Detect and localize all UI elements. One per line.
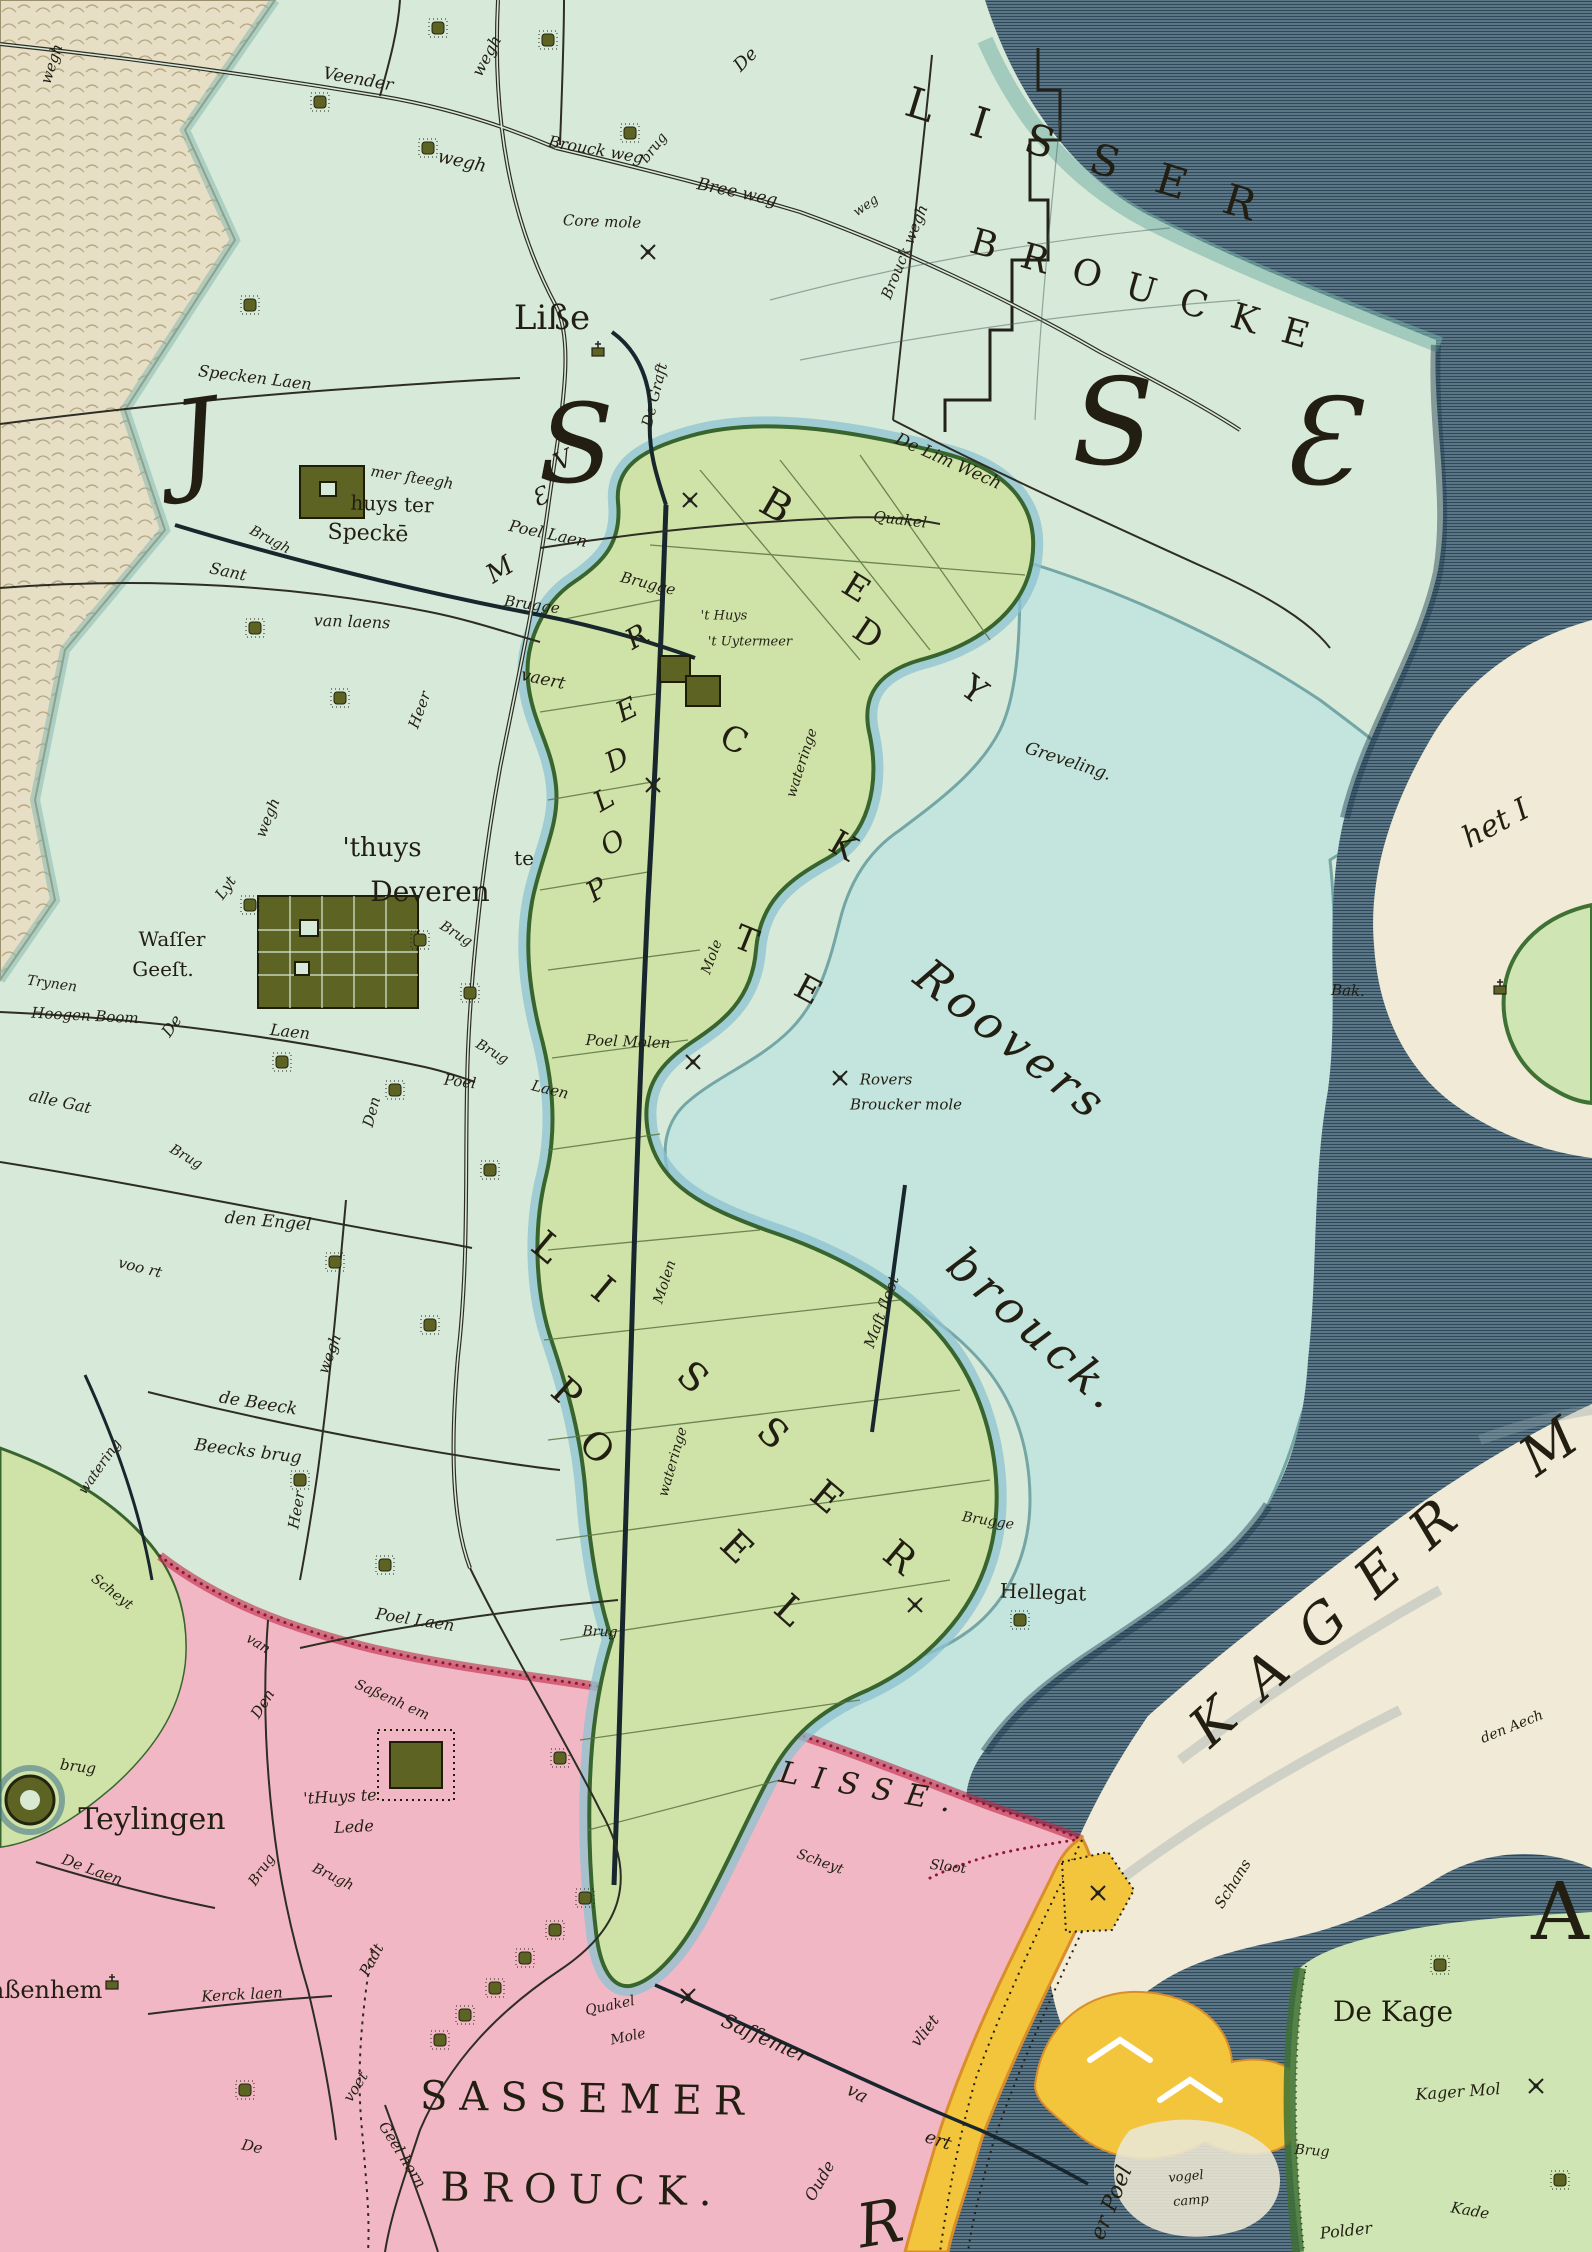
label-p3: E <box>714 1524 760 1571</box>
label-broucke_big: BROUCKE <box>966 224 1337 362</box>
label-l2: I <box>585 1270 621 1309</box>
label-p1: P <box>545 1370 589 1415</box>
label-de_v: De <box>159 1012 185 1039</box>
label-vliet_v: vliet <box>908 2012 942 2050</box>
label-voort: voo rt <box>117 1255 164 1280</box>
label-van2: van <box>244 1631 273 1656</box>
label-ert: ert <box>923 2128 954 2153</box>
label-q1: P <box>582 873 613 907</box>
label-de_graft: De Graft <box>640 361 670 428</box>
label-polder_k: Polder <box>1319 2220 1373 2241</box>
label-greveling: Greveling. <box>1023 740 1113 784</box>
label-lyt: Lyt <box>213 874 239 902</box>
label-hellegat: Hellegat <box>999 1580 1086 1603</box>
label-b8: E <box>789 969 827 1011</box>
label-te_dev: te <box>514 848 534 868</box>
label-g3: S <box>1072 364 1154 484</box>
label-brug_sw: Brug <box>167 1142 204 1172</box>
label-big_a: A <box>1531 1872 1589 1952</box>
label-brugge3: Brugge <box>961 1510 1015 1532</box>
label-poel_s: Poel <box>443 1073 477 1092</box>
label-brouck_s_big: BROUCK. <box>440 2168 724 2213</box>
label-geest: Geeſt. <box>132 959 193 979</box>
label-p2: O <box>573 1423 622 1472</box>
label-vogel1: vogel <box>1168 2169 1204 2185</box>
label-va: va <box>844 2081 871 2107</box>
label-sloot1: Sloot <box>929 1858 967 1876</box>
label-kager_mol: Kager Mol <box>1415 2081 1501 2103</box>
label-l6: R <box>877 1533 923 1581</box>
label-core_mole: Core mole <box>563 213 642 231</box>
label-g1: J <box>167 382 226 497</box>
label-brouck_wegh_v: Brouck wegh <box>879 203 930 301</box>
label-q2: O <box>596 825 630 861</box>
label-b4: Y <box>955 670 993 711</box>
label-mer_steegh: mer ſteegh <box>370 464 455 492</box>
map-canvas: weghVeenderweghweghBrouck wegbrugBree we… <box>0 0 1592 2252</box>
label-brug_top: brug <box>638 130 670 165</box>
label-specke: Speckē <box>327 522 409 547</box>
label-wegh_n: wegh <box>470 33 505 79</box>
label-er_poel: er Poel <box>1087 2163 1137 2243</box>
label-thuys: 'thuys <box>342 835 421 861</box>
label-wegh_w: wegh <box>436 148 488 176</box>
label-l3: S <box>671 1354 716 1400</box>
label-devieren: Deveren <box>370 878 489 906</box>
label-heer1: Heer <box>406 690 433 731</box>
label-veender: Veender <box>322 65 395 94</box>
label-brugge2: Brugge <box>619 570 677 598</box>
label-wegh_s: wegh <box>316 1332 344 1376</box>
label-brug_kage: Brug <box>1294 2143 1330 2159</box>
label-lisse_town: Liße <box>514 301 590 335</box>
label-quakel: Quakel <box>872 509 927 530</box>
label-s3: M <box>482 552 518 588</box>
label-brug_pold: Brug <box>582 1624 617 1639</box>
label-kager_big: KAGER <box>1180 1468 1491 1756</box>
label-de_lim: De Lim Wech <box>892 431 1003 493</box>
label-wegh_lyt: wegh <box>253 796 282 840</box>
label-voet_v: voet <box>341 2069 371 2104</box>
label-brouck_weg: Brouck weg <box>547 134 645 167</box>
label-sassemer_big: SASSEMER <box>420 2076 757 2122</box>
label-wegh_dune: wegh <box>39 42 66 86</box>
label-brugge1: Brugge <box>503 594 560 617</box>
label-trynen: Trynen <box>26 974 78 995</box>
label-teylingen: Teylingen <box>78 1805 225 1835</box>
label-big_r: R <box>853 2191 908 2252</box>
label-den_v: Den <box>361 1095 383 1128</box>
label-mole_v: Mole <box>699 938 724 976</box>
label-laen_ps: Laen <box>530 1078 570 1102</box>
label-vogel2: camp <box>1173 2193 1210 2209</box>
label-q5: E <box>612 693 643 727</box>
label-brug_tey: brug <box>59 1757 97 1776</box>
label-padt_v: Padt <box>357 1941 386 1978</box>
label-van_laens: van laens <box>313 613 390 632</box>
label-quakel2: Quakel <box>584 1994 636 2018</box>
label-q3: L <box>589 783 619 817</box>
label-b2: E <box>836 567 875 609</box>
label-b5: C <box>715 719 753 761</box>
label-scheyt1: Scheyt <box>795 1847 845 1877</box>
label-brug_lede: Brug <box>246 1852 278 1889</box>
label-specken_laen: Specken Laen <box>197 363 312 393</box>
label-bree_weg: Bree weg <box>695 176 778 210</box>
label-laen_dev: Laen <box>269 1022 310 1042</box>
label-sassemer_sc: Saſſemer <box>719 2010 812 2066</box>
label-b7: T <box>729 920 763 960</box>
label-g2: S <box>538 389 613 499</box>
label-poel_molen: Poel Molen <box>585 1033 670 1051</box>
label-kerck_laen: Kerck laen <box>201 1985 283 2004</box>
label-de_kage: De Kage <box>1333 1998 1453 2026</box>
label-oude_v: Oude <box>802 2158 837 2203</box>
label-de_top: De <box>731 45 761 75</box>
label-het_i: het I <box>1458 794 1534 854</box>
label-q4: D <box>601 742 633 777</box>
label-weg_sm: weg <box>851 193 881 219</box>
label-de_beeck: de Beeck <box>218 1389 298 1418</box>
labels-layer: weghVeenderweghweghBrouck wegbrugBree we… <box>0 0 1592 2252</box>
label-uyter1: 't Huys <box>701 610 748 623</box>
label-vaert: vaert <box>519 667 566 693</box>
label-lisse_inlet: LISSE. <box>777 1758 967 1820</box>
label-lisser_big: LISSER <box>901 81 1299 239</box>
label-wateringe1: wateringe <box>784 727 819 800</box>
label-bak: Bak. <box>1331 983 1365 999</box>
label-den_aech: den Aech <box>1479 1708 1545 1746</box>
label-waller: Waſſer <box>139 929 206 949</box>
label-den2: Den <box>249 1687 278 1721</box>
label-poel_laen_n: Poel Laen <box>508 518 589 550</box>
label-m_big: M <box>1511 1409 1587 1485</box>
label-heer2: Heer <box>286 1490 307 1530</box>
label-hoogen: Hoogen Boom <box>31 1006 139 1027</box>
label-alle_gat: alle Gat <box>27 1088 92 1117</box>
label-wateringe2: wateringe <box>656 1426 689 1499</box>
label-l5: E <box>804 1474 850 1521</box>
label-b3: D <box>847 612 889 655</box>
label-de_laen2: De Laen <box>60 1852 124 1888</box>
label-brugh_w: Brugh <box>247 523 292 556</box>
label-sant: Sant <box>208 560 248 583</box>
label-l4: S <box>751 1410 796 1456</box>
label-mast_sloot: Maſt ſloot <box>862 1274 902 1350</box>
label-rovers1: Rovers <box>860 1073 913 1088</box>
label-huys_ter: huys ter <box>350 493 434 516</box>
label-geel_horn: Geel horn <box>376 2119 428 2190</box>
label-brouck_big2: brouck. <box>939 1240 1133 1421</box>
label-den_engel: den Engel <box>224 1210 312 1235</box>
label-rovers2: Broucker mole <box>850 1098 962 1113</box>
label-l1: L <box>525 1224 569 1269</box>
label-sassenh2: Saßenh em <box>353 1677 431 1722</box>
label-sassenhem_town: Saßenhem <box>0 1978 102 2002</box>
label-kade: Kade <box>1450 2200 1491 2221</box>
label-mole2: Mole <box>609 2026 647 2047</box>
label-watering_v: watering <box>76 1437 124 1497</box>
label-molen_v: Molen <box>651 1259 678 1306</box>
label-lede1: 'tHuys te <box>303 1787 377 1807</box>
label-brug_dev: Brug <box>437 919 474 949</box>
label-b1: B <box>753 481 798 530</box>
label-schans: Schans <box>1212 1857 1254 1911</box>
label-g4: Ɛ <box>1281 384 1356 504</box>
label-poel_laen_s: Poel Laen <box>375 1606 456 1634</box>
label-brugh_lede: Brugh <box>310 1861 356 1893</box>
label-uyter2: 't Uytermeer <box>708 636 792 649</box>
label-scheyt2: Scheyt <box>89 1572 136 1613</box>
label-brug_poel: Brug <box>473 1037 510 1067</box>
label-b6: K <box>823 825 862 867</box>
label-lede2: Lede <box>334 1818 375 1836</box>
label-p4: L <box>768 1587 812 1632</box>
label-de_s: De <box>240 2137 264 2156</box>
label-beecks_brug: Beecks brug <box>194 1437 303 1467</box>
label-q6: R <box>621 620 653 655</box>
